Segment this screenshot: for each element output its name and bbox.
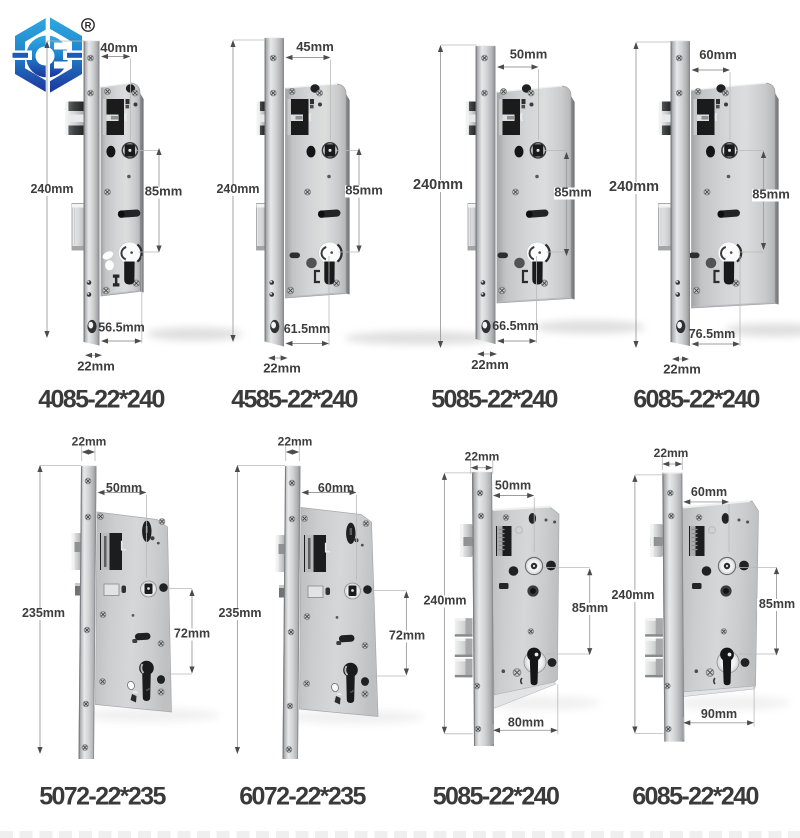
svg-text:6072-22*235: 6072-22*235 (239, 783, 366, 811)
svg-text:4085-22*240: 4085-22*240 (38, 386, 164, 414)
svg-text:60mm: 60mm (691, 485, 727, 499)
svg-text:240mm: 240mm (413, 177, 463, 193)
svg-text:22mm: 22mm (465, 450, 500, 464)
svg-text:R: R (85, 21, 92, 32)
svg-text:6085-22*240: 6085-22*240 (633, 386, 759, 414)
svg-text:240mm: 240mm (216, 182, 259, 196)
svg-text:22mm: 22mm (72, 435, 107, 449)
svg-text:60mm: 60mm (318, 481, 354, 495)
svg-text:72mm: 72mm (389, 629, 425, 643)
svg-text:235mm: 235mm (218, 606, 261, 620)
svg-text:56.5mm: 56.5mm (98, 321, 145, 335)
svg-text:85mm: 85mm (759, 597, 795, 611)
svg-text:22mm: 22mm (263, 361, 301, 376)
svg-text:66.5mm: 66.5mm (492, 319, 539, 333)
svg-text:40mm: 40mm (100, 40, 138, 55)
svg-text:85mm: 85mm (572, 601, 608, 615)
svg-text:85mm: 85mm (554, 185, 592, 200)
svg-text:50mm: 50mm (106, 481, 142, 495)
svg-text:85mm: 85mm (345, 183, 383, 198)
svg-text:240mm: 240mm (609, 179, 659, 195)
svg-text:5085-22*240: 5085-22*240 (433, 783, 559, 811)
svg-text:90mm: 90mm (701, 707, 737, 721)
svg-text:72mm: 72mm (174, 627, 210, 641)
svg-text:22mm: 22mm (471, 357, 509, 372)
svg-text:50mm: 50mm (510, 47, 548, 62)
svg-text:50mm: 50mm (495, 479, 531, 493)
svg-text:22mm: 22mm (663, 362, 701, 377)
svg-text:6085-22*240: 6085-22*240 (632, 783, 758, 811)
svg-text:80mm: 80mm (508, 716, 544, 730)
svg-text:60mm: 60mm (699, 47, 737, 62)
svg-text:5072-22*235: 5072-22*235 (39, 783, 166, 811)
svg-text:22mm: 22mm (278, 435, 313, 449)
svg-text:240mm: 240mm (30, 182, 73, 196)
svg-text:240mm: 240mm (611, 588, 654, 602)
svg-text:85mm: 85mm (145, 184, 183, 199)
svg-text:5085-22*240: 5085-22*240 (431, 386, 557, 414)
svg-text:76.5mm: 76.5mm (689, 327, 736, 341)
svg-text:22mm: 22mm (654, 446, 689, 460)
svg-text:235mm: 235mm (22, 606, 65, 620)
svg-text:22mm: 22mm (77, 359, 115, 374)
svg-text:4585-22*240: 4585-22*240 (231, 386, 357, 414)
svg-text:85mm: 85mm (752, 187, 790, 202)
svg-text:61.5mm: 61.5mm (284, 322, 331, 336)
svg-text:240mm: 240mm (423, 594, 466, 608)
svg-text:45mm: 45mm (296, 39, 334, 54)
